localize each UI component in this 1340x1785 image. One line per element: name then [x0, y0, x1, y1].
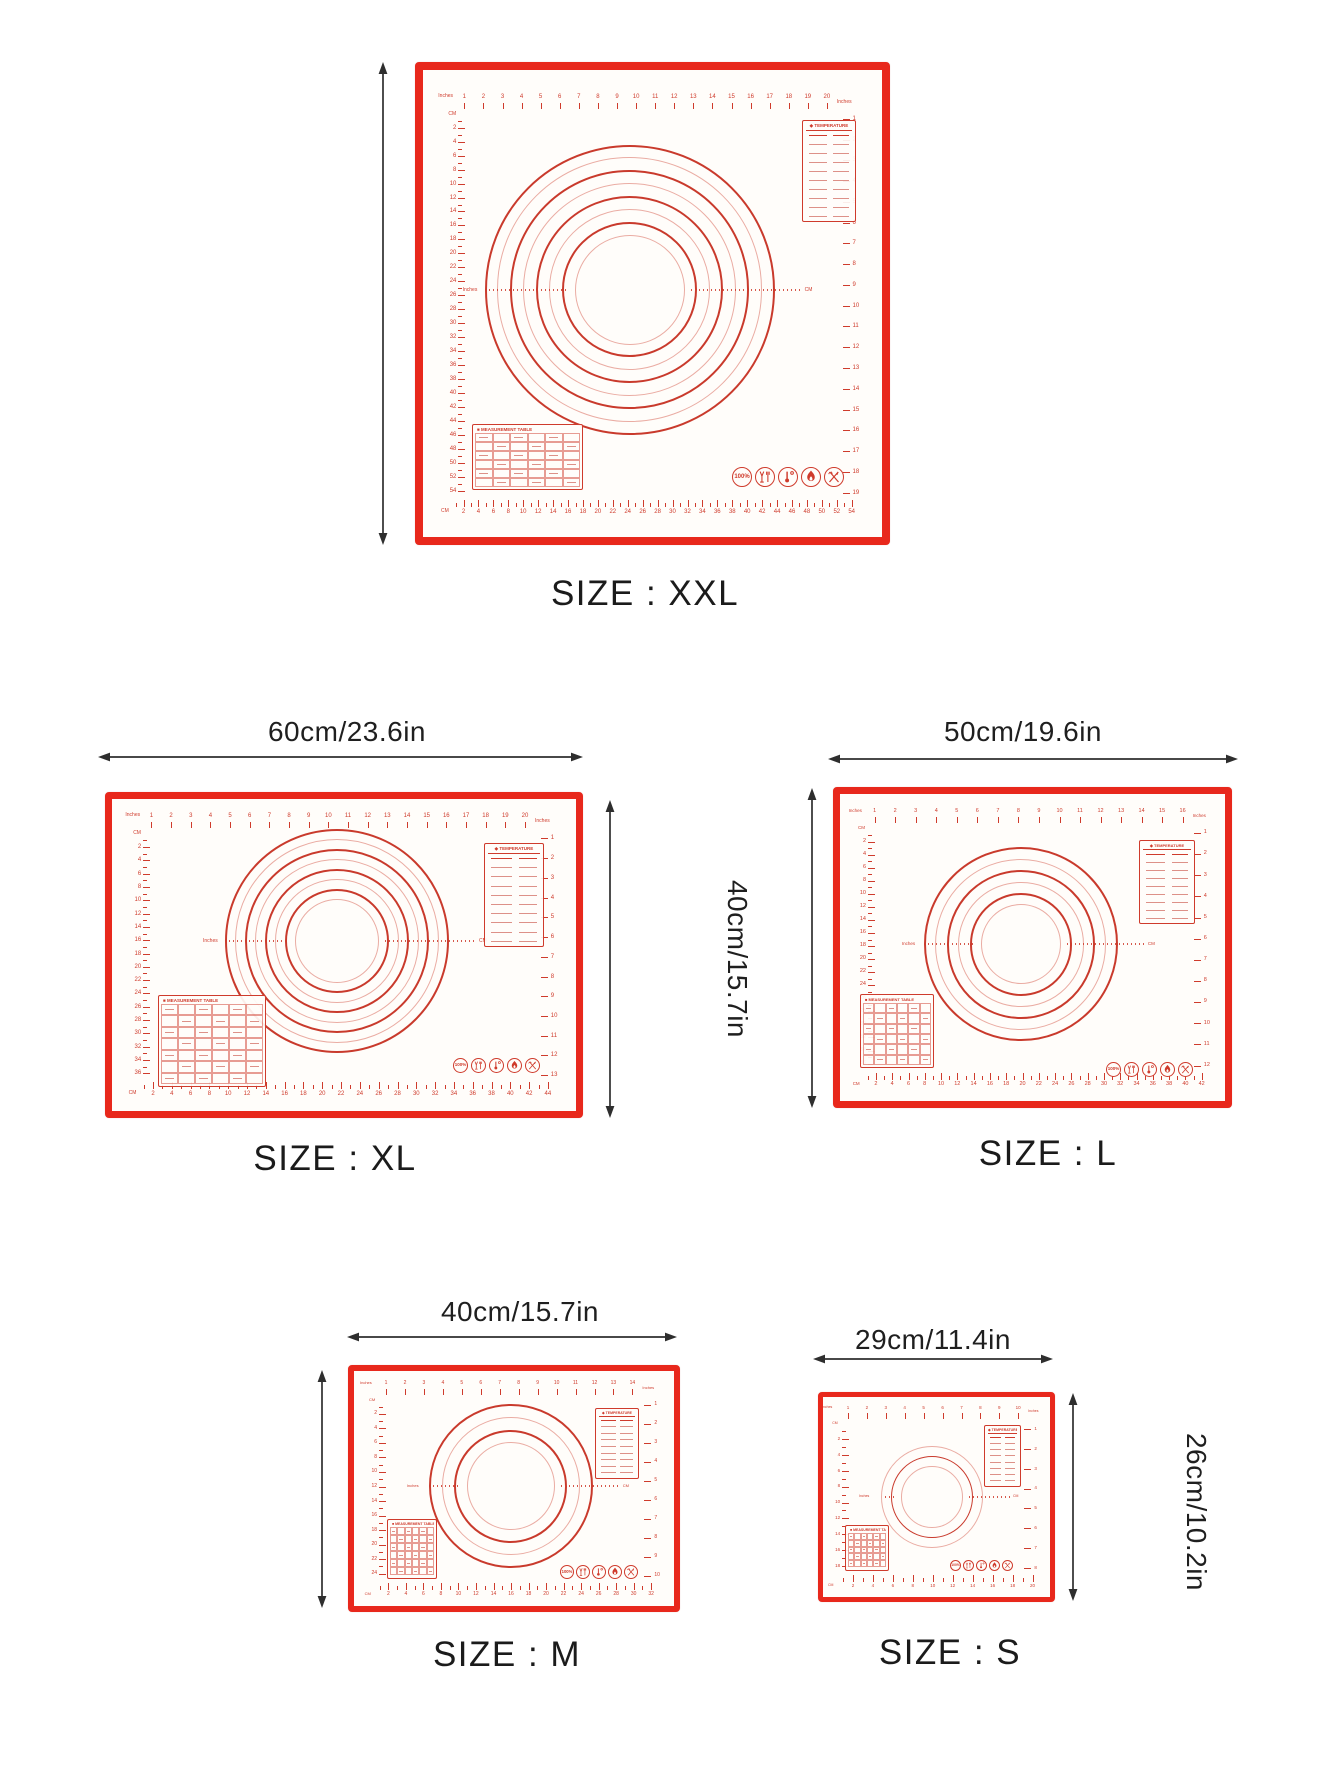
- pastry-mat-l: InchesCM12345678910111213141516InchesInc…: [833, 787, 1232, 1108]
- ruler-tick: [598, 500, 599, 507]
- temperature-table-cell: [620, 1446, 632, 1447]
- measurement-table-cell: [427, 1551, 434, 1559]
- measurement-table-cell: [528, 451, 546, 460]
- ruler-number: 38: [488, 1091, 495, 1097]
- measurement-table-value: [532, 464, 541, 465]
- measurement-table-cell: [161, 1015, 178, 1026]
- ruler-number: 22: [561, 1592, 567, 1597]
- s-size-label: SIZE : S: [750, 1633, 1150, 1673]
- ruler-tick: [463, 1085, 464, 1089]
- measurement-table-cell: [475, 442, 493, 451]
- ruler-tick: [1039, 1073, 1040, 1080]
- ruler-tick: [702, 500, 703, 507]
- temperature-table-title: ◆ TEMPERATURE: [1143, 843, 1191, 850]
- ruler-number: 32: [648, 1592, 654, 1597]
- measurement-table-value: [889, 1008, 895, 1009]
- temperature-table-cell: [601, 1459, 615, 1460]
- ruler-number: 36: [1150, 1082, 1156, 1088]
- ruler-number: 6: [492, 509, 495, 515]
- ruler-tick: [555, 1586, 556, 1590]
- ruler-number: 28: [1085, 1082, 1091, 1088]
- measurement-table-cell: [563, 433, 581, 442]
- ruler-number: 28: [654, 509, 661, 515]
- temperature-table-cell: [1005, 1437, 1015, 1438]
- ruler-number: 44: [774, 509, 781, 515]
- measurement-table-cell: [427, 1535, 434, 1543]
- ruler-tick: [680, 503, 681, 507]
- xxl-height-dimension-arrow: [376, 62, 390, 550]
- measurement-table-cell: [863, 1044, 874, 1054]
- measurement-table-cell: [493, 469, 511, 478]
- ruler-tick: [635, 503, 636, 507]
- measurement-table-cell: [178, 1061, 195, 1072]
- ruler-tick: [628, 500, 629, 507]
- measurement-table-cell: [229, 1015, 246, 1026]
- ruler-number: 8: [440, 1592, 443, 1597]
- measurement-table-cell: [212, 1061, 229, 1072]
- measurement-table-cell: [510, 451, 528, 460]
- ruler-number: 16: [281, 1091, 288, 1097]
- s-height-dimension-arrow: [1066, 1393, 1080, 1606]
- temperature-table-cell: [519, 941, 537, 942]
- temperature-table-row: [806, 131, 852, 140]
- measurement-table-value: [216, 1066, 225, 1067]
- ruler-tick: [486, 503, 487, 507]
- measurement-table-value: [866, 1049, 872, 1050]
- ruler-tick: [963, 1578, 964, 1582]
- ruler-number: 14: [550, 509, 557, 515]
- heat-thermometer-icon: [489, 1058, 504, 1073]
- measurement-table-cell: [886, 1044, 897, 1054]
- temperature-table-cell: [620, 1472, 632, 1473]
- measurement-table-value: [877, 1039, 883, 1040]
- temperature-table-cell: [601, 1433, 615, 1434]
- ruler-tick: [581, 1583, 582, 1590]
- ruler-tick: [285, 1082, 286, 1089]
- food-safe-icon: [1124, 1062, 1139, 1077]
- ruler-tick: [369, 1085, 370, 1089]
- measurement-table-value: [869, 1543, 872, 1544]
- ruler-tick: [717, 500, 718, 507]
- ruler-number: 2: [852, 1584, 855, 1589]
- temperature-table-row: [1143, 866, 1191, 874]
- ruler-tick: [529, 1082, 530, 1089]
- measurement-table-cell: [897, 1024, 908, 1034]
- measurement-table-cell: [528, 433, 546, 442]
- badge-100-icon: 100%: [732, 467, 752, 487]
- ruler-number: 10: [225, 1091, 232, 1097]
- measurement-table-cell: [880, 1553, 886, 1560]
- ruler-tick: [153, 1082, 154, 1089]
- temperature-table-title: ◆ TEMPERATURE: [488, 846, 540, 854]
- ruler-tick: [476, 1583, 477, 1590]
- ruler-number: 10: [456, 1592, 462, 1597]
- measurement-table-cell: [874, 1024, 885, 1034]
- ruler-tick: [539, 1085, 540, 1089]
- measurement-table-value: [567, 482, 576, 483]
- temperature-table-cell: [519, 895, 537, 896]
- ruler-number: 30: [1101, 1082, 1107, 1088]
- measurement-table-value: [549, 455, 558, 456]
- ruler-tick: [852, 500, 853, 507]
- measurement-table-value: [392, 1563, 395, 1564]
- ruler-tick: [607, 1586, 608, 1590]
- temperature-table-cell: [809, 144, 827, 145]
- ruler-tick: [814, 503, 815, 507]
- temperature-table-cell: [491, 895, 512, 896]
- temperature-table-cell: [1146, 870, 1165, 871]
- badge-100-icon: 100%: [453, 1058, 468, 1073]
- ruler-tick: [770, 503, 771, 507]
- measurement-table-value: [429, 1555, 432, 1556]
- ruler-number: 16: [565, 509, 572, 515]
- measurement-table-cell: [195, 1027, 212, 1038]
- temperature-table-cell: [519, 867, 537, 868]
- ruler-tick: [957, 1073, 958, 1080]
- measurement-table-cell: [212, 1050, 229, 1061]
- temperature-table-cell: [491, 858, 512, 859]
- ruler-tick: [388, 1583, 389, 1590]
- food-safe-icon: [755, 467, 775, 487]
- measurement-table-grid: [475, 433, 580, 487]
- measurement-table-value: [877, 1018, 883, 1019]
- ruler-tick: [564, 1583, 565, 1590]
- ruler-tick: [501, 1085, 502, 1089]
- ruler-tick: [844, 503, 845, 507]
- measurement-table-cell: [412, 1551, 419, 1559]
- measurement-table-value: [165, 1078, 174, 1079]
- ruler-tick: [493, 500, 494, 507]
- ruler-tick: [620, 503, 621, 507]
- measurement-table-cell: [863, 1013, 874, 1023]
- temperature-table-cell: [519, 904, 537, 905]
- xl-width-dimension-arrow: [98, 750, 583, 769]
- heat-thermometer-icon: [1142, 1062, 1157, 1077]
- measurement-table-cell: [212, 1073, 229, 1084]
- measurement-table-cell: [493, 460, 511, 469]
- measurement-table-grid: [390, 1527, 434, 1575]
- certification-icons-row: 100%: [453, 1058, 540, 1073]
- ruler-number: 54: [848, 509, 855, 515]
- ruler-tick: [777, 500, 778, 507]
- xl-width-dimension-label: 60cm/23.6in: [147, 716, 547, 748]
- measurement-table-cell: [880, 1540, 886, 1547]
- measurement-table-value: [889, 1049, 895, 1050]
- measurement-table-cell: [897, 1055, 908, 1065]
- temperature-table-cell: [1172, 862, 1188, 863]
- ruler-tick: [903, 1578, 904, 1582]
- ruler-number: 6: [422, 1592, 425, 1597]
- measurement-table-cell: [412, 1559, 419, 1567]
- measurement-table-value: [911, 1049, 917, 1050]
- temperature-table-cell: [833, 162, 849, 163]
- ruler-number: 44: [545, 1091, 552, 1097]
- measurement-table-cell: [908, 1013, 919, 1023]
- measurement-table-value: [407, 1563, 410, 1564]
- measurement-table-grid: [848, 1533, 886, 1567]
- ruler-tick: [590, 1586, 591, 1590]
- measurement-table-cell: [427, 1567, 434, 1575]
- utensils-icon: [1178, 1062, 1193, 1077]
- ruler-number: 2: [151, 1091, 154, 1097]
- ruler-number: 20: [1019, 1082, 1025, 1088]
- ruler-number: 2: [874, 1082, 877, 1088]
- measurement-table-value: [497, 464, 506, 465]
- measurement-table-grid: [161, 1004, 263, 1084]
- ruler-number: 48: [804, 509, 811, 515]
- measurement-table-value: [216, 1043, 225, 1044]
- measurement-table-cell: [195, 1015, 212, 1026]
- temperature-table-cell: [809, 135, 827, 136]
- measurement-table-cell: [880, 1560, 886, 1567]
- temperature-table: ◆ TEMPERATURE: [1139, 840, 1195, 924]
- measurement-table-value: [414, 1539, 417, 1540]
- measurement-table-cell: [246, 1073, 263, 1084]
- ruler-tick: [643, 500, 644, 507]
- temperature-table-cell: [1005, 1480, 1015, 1481]
- ruler-tick: [1031, 1076, 1032, 1080]
- measurement-table-value: [216, 1021, 225, 1022]
- ruler-tick: [546, 503, 547, 507]
- measurement-table-cell: [246, 1015, 263, 1026]
- ruler-tick: [658, 500, 659, 507]
- measurement-table-grid: [863, 1003, 931, 1065]
- measurement-table-value: [911, 1028, 917, 1029]
- measurement-table-cell: [493, 478, 511, 487]
- ruler-tick: [450, 1586, 451, 1590]
- measurement-table-cell: [510, 478, 528, 487]
- ruler-tick: [863, 1578, 864, 1582]
- ruler-tick: [576, 503, 577, 507]
- measurement-table-value: [900, 1059, 906, 1060]
- s-width-dimension-arrow: [813, 1352, 1053, 1371]
- measurement-table-value: [875, 1549, 878, 1550]
- ruler-tick: [625, 1586, 626, 1590]
- ruler-number: 16: [990, 1584, 995, 1589]
- temperature-table-cell: [809, 162, 827, 163]
- ruler-tick: [445, 1085, 446, 1089]
- ruler-number: 8: [507, 509, 510, 515]
- ruler-tick: [900, 1076, 901, 1080]
- ruler-number: 12: [950, 1584, 955, 1589]
- temperature-table-cell: [833, 171, 849, 172]
- temperature-table-row: [488, 882, 540, 891]
- heat-thermometer-icon: [778, 467, 798, 487]
- ruler-number: 2: [387, 1592, 390, 1597]
- measurement-table-value: [414, 1555, 417, 1556]
- measurement-table-value: [923, 1018, 929, 1019]
- measurement-table-cell: [880, 1547, 886, 1554]
- ruler-number: 4: [170, 1091, 173, 1097]
- measurement-table-value: [869, 1556, 872, 1557]
- temperature-table-cell: [1172, 910, 1188, 911]
- flame-icon: [608, 1565, 622, 1579]
- ruler-number: 14: [262, 1091, 269, 1097]
- ruler-tick: [523, 500, 524, 507]
- temperature-table-cell: [1172, 870, 1188, 871]
- measurement-table-cell: [475, 478, 493, 487]
- temperature-table-cell: [1005, 1455, 1015, 1456]
- ruler-tick: [943, 1578, 944, 1582]
- certification-icons-row: 100%: [560, 1565, 638, 1579]
- measurement-table-cell: [405, 1543, 412, 1551]
- measurement-table-cell: [161, 1027, 178, 1038]
- temperature-table-row: [488, 854, 540, 863]
- measurement-table-cell: [880, 1533, 886, 1540]
- bottom-ruler-unit: CM: [853, 1082, 860, 1087]
- measurement-table-value: [567, 464, 576, 465]
- measurement-table-value: [233, 1009, 242, 1010]
- ruler-tick: [1096, 1076, 1097, 1080]
- measurement-table-value: [392, 1547, 395, 1548]
- measurement-table-title: ■ MEASUREMENT TABLE: [475, 426, 580, 433]
- temperature-table-cell: [809, 198, 827, 199]
- ruler-number: 36: [469, 1091, 476, 1097]
- measurement-table-value: [875, 1563, 878, 1564]
- ruler-tick: [913, 1575, 914, 1582]
- ruler-tick: [590, 503, 591, 507]
- temperature-table-row: [806, 158, 852, 167]
- measurement-table-cell: [161, 1073, 178, 1084]
- ruler-tick: [516, 503, 517, 507]
- ruler-tick: [492, 1082, 493, 1089]
- measurement-table-value: [866, 1028, 872, 1029]
- temperature-table-row: [806, 140, 852, 149]
- ruler-number: 26: [596, 1592, 602, 1597]
- ruler-tick: [1055, 1073, 1056, 1080]
- ruler-tick: [1033, 1575, 1034, 1582]
- temperature-table-cell: [833, 189, 849, 190]
- measurement-table-cell: [212, 1004, 229, 1015]
- ruler-number: 12: [244, 1091, 251, 1097]
- measurement-table-value: [479, 455, 488, 456]
- ruler-tick: [388, 1085, 389, 1089]
- measurement-table-title: ■ MEASUREMENT TABLE: [161, 997, 263, 1004]
- ruler-number: 42: [759, 509, 766, 515]
- ruler-tick: [634, 1583, 635, 1590]
- temperature-table-cell: [491, 886, 512, 887]
- temperature-table-cell: [601, 1426, 615, 1427]
- ruler-tick: [1080, 1076, 1081, 1080]
- measurement-table-cell: [161, 1004, 178, 1015]
- measurement-table-cell: [920, 1013, 931, 1023]
- measurement-table-cell: [405, 1527, 412, 1535]
- ruler-number: 30: [669, 509, 676, 515]
- measurement-table-cell: [874, 1034, 885, 1044]
- l-height-dimension-arrow: [805, 788, 819, 1113]
- measurement-table-cell: [195, 1038, 212, 1049]
- ruler-number: 10: [520, 509, 527, 515]
- ruler-tick: [583, 500, 584, 507]
- measurement-table-cell: [874, 1044, 885, 1054]
- temperature-table-cell: [519, 922, 537, 923]
- temperature-table-cell: [1172, 918, 1188, 919]
- measurement-table-value: [392, 1531, 395, 1532]
- measurement-table-cell: [390, 1559, 397, 1567]
- ruler-number: 6: [907, 1082, 910, 1088]
- ruler-tick: [435, 1082, 436, 1089]
- temperature-table-cell: [620, 1439, 632, 1440]
- temperature-table-cell: [990, 1437, 1002, 1438]
- measurement-table-cell: [874, 1055, 885, 1065]
- ruler-tick: [407, 1085, 408, 1089]
- ruler-number: 4: [405, 1592, 408, 1597]
- food-safe-icon: [576, 1565, 590, 1579]
- temperature-table-cell: [809, 189, 827, 190]
- utensils-icon: [624, 1565, 638, 1579]
- ruler-tick: [909, 1073, 910, 1080]
- ruler-tick: [502, 1586, 503, 1590]
- ruler-number: 18: [1010, 1584, 1015, 1589]
- ruler-tick: [917, 1076, 918, 1080]
- measurement-table-value: [567, 446, 576, 447]
- measurement-table-cell: [178, 1004, 195, 1015]
- measurement-table-value: [182, 1043, 191, 1044]
- ruler-number: 42: [1199, 1082, 1205, 1088]
- temperature-table-row: [806, 185, 852, 194]
- measurement-table-cell: [528, 478, 546, 487]
- ruler-tick: [868, 1076, 869, 1080]
- measurement-table-cell: [195, 1061, 212, 1072]
- ruler-tick: [1023, 1578, 1024, 1582]
- ruler-number: 20: [1030, 1584, 1035, 1589]
- temperature-table-row: [488, 909, 540, 918]
- measurement-table-cell: [475, 433, 493, 442]
- temperature-table-row: [988, 1478, 1017, 1484]
- ruler-tick: [1003, 1578, 1004, 1582]
- temperature-table-cell: [1005, 1449, 1015, 1450]
- flame-icon: [507, 1058, 522, 1073]
- ruler-tick: [755, 503, 756, 507]
- measurement-table-cell: [563, 460, 581, 469]
- certification-icons-row: 100%: [732, 467, 844, 487]
- heat-thermometer-icon: [592, 1565, 606, 1579]
- measurement-table-cell: [475, 451, 493, 460]
- measurement-table-cell: [229, 1027, 246, 1038]
- ruler-tick: [511, 1583, 512, 1590]
- temperature-table-row: [806, 167, 852, 176]
- ruler-number: 8: [923, 1082, 926, 1088]
- temperature-table-cell: [1005, 1474, 1015, 1475]
- temperature-table-cell: [491, 941, 512, 942]
- ruler-number: 4: [891, 1082, 894, 1088]
- ruler-tick: [892, 1073, 893, 1080]
- measurement-table-value: [421, 1531, 424, 1532]
- ruler-tick: [876, 1073, 877, 1080]
- ruler-tick: [406, 1583, 407, 1590]
- ruler-tick: [397, 1586, 398, 1590]
- ruler-number: 30: [413, 1091, 420, 1097]
- ruler-tick: [464, 500, 465, 507]
- measurement-table-value: [514, 473, 523, 474]
- ruler-tick: [599, 1583, 600, 1590]
- utensils-icon: [1002, 1560, 1013, 1571]
- ruler-number: 22: [338, 1091, 345, 1097]
- temperature-table-cell: [601, 1439, 615, 1440]
- measurement-table-value: [923, 1039, 929, 1040]
- measurement-table-cell: [390, 1535, 397, 1543]
- temperature-table-cell: [1146, 894, 1165, 895]
- temperature-table-cell: [1146, 886, 1165, 887]
- ruler-tick: [432, 1586, 433, 1590]
- ruler-tick: [725, 503, 726, 507]
- measurement-table-value: [863, 1549, 866, 1550]
- ruler-tick: [1088, 1073, 1089, 1080]
- ruler-tick: [538, 500, 539, 507]
- measurement-table-cell: [405, 1551, 412, 1559]
- temperature-table-row: [488, 928, 540, 937]
- measurement-table-cell: [178, 1073, 195, 1084]
